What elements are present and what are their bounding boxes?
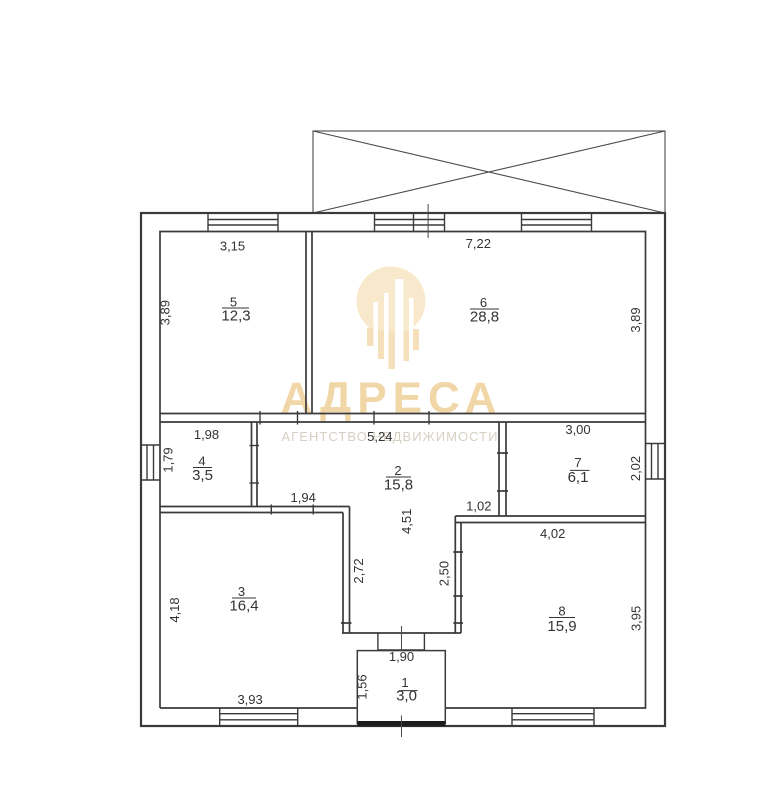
svg-text:4,51: 4,51 [399,509,414,534]
svg-text:1,56: 1,56 [355,674,370,699]
svg-text:3,15: 3,15 [220,239,245,254]
svg-text:3,5: 3,5 [192,467,213,484]
svg-text:4,02: 4,02 [540,526,565,541]
svg-text:3,95: 3,95 [629,606,644,631]
svg-text:8: 8 [558,604,565,619]
svg-text:6,1: 6,1 [568,469,589,486]
svg-text:5,24: 5,24 [367,429,392,444]
svg-text:16,4: 16,4 [229,598,258,615]
svg-text:15,8: 15,8 [384,477,413,494]
svg-text:АДРЕСА: АДРЕСА [281,374,503,423]
svg-text:2,72: 2,72 [351,558,366,583]
svg-text:2,50: 2,50 [437,561,452,586]
svg-text:1,02: 1,02 [466,499,491,514]
svg-text:1,94: 1,94 [291,490,316,505]
svg-text:3,93: 3,93 [237,692,262,707]
svg-text:1,90: 1,90 [389,649,414,664]
svg-text:3,00: 3,00 [565,422,590,437]
svg-text:3,89: 3,89 [628,307,643,332]
svg-text:15,9: 15,9 [547,618,576,635]
svg-text:3,89: 3,89 [158,300,173,325]
svg-text:28,8: 28,8 [470,309,499,326]
svg-text:7,22: 7,22 [466,236,491,251]
svg-text:7: 7 [574,455,581,470]
svg-text:1,98: 1,98 [194,427,219,442]
svg-text:1,79: 1,79 [161,447,176,472]
svg-text:12,3: 12,3 [221,308,250,325]
svg-text:2,02: 2,02 [628,456,643,481]
svg-text:3,0: 3,0 [396,688,417,705]
svg-text:4,18: 4,18 [167,597,182,622]
